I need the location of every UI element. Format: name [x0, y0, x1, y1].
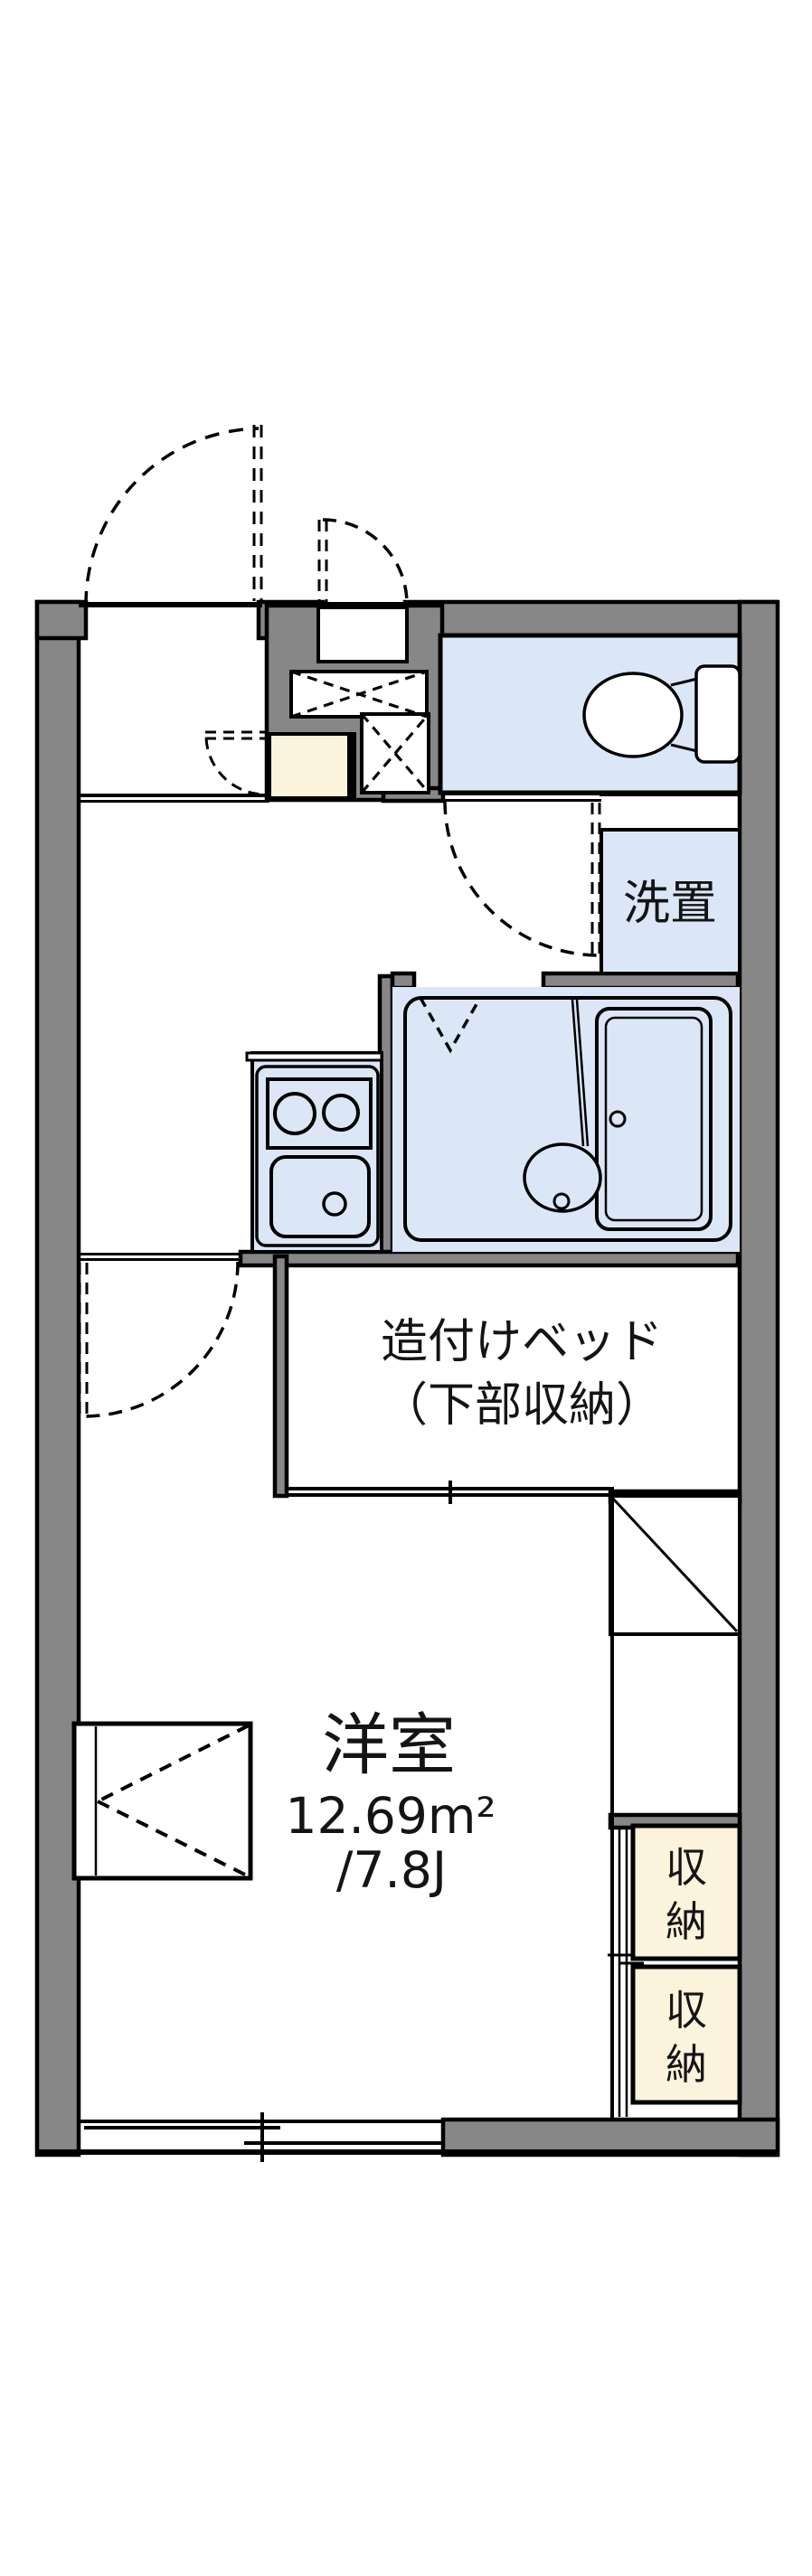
closet-column: 収 納 収 納: [608, 1496, 740, 2120]
vestibule-features: [205, 607, 429, 799]
shoe-cabinet-door: [205, 732, 268, 794]
entry-door-swing-arc: [86, 428, 259, 606]
bed-label-line1: 造付けベッド: [381, 1315, 663, 1369]
washbasin-icon: [524, 1144, 600, 1211]
floorplan-svg: 洗置 造付けベッド （下部収納）: [0, 0, 812, 2576]
floorplan-canvas: 洗置 造付けベッド （下部収納）: [0, 0, 812, 2576]
wall-bath-top-right: [543, 973, 738, 988]
main-room-name: 洋室: [322, 1706, 456, 1784]
toilet-tank-icon: [696, 666, 740, 762]
toilet-door-threshold-2: [443, 799, 601, 802]
bed-label-line2: （下部収納）: [381, 1378, 663, 1433]
wall-top-right-segment: [405, 602, 776, 638]
storage-lower-label-2: 納: [666, 2040, 707, 2089]
wall-left: [37, 602, 79, 2155]
service-door-recess: [318, 607, 407, 662]
wall-bath-top-left: [392, 973, 414, 988]
entry-step-line-1: [77, 794, 269, 797]
storage-lower-label-1: 収: [666, 1986, 707, 2035]
mainroom-door-threshold-2: [77, 1258, 241, 1261]
built-in-bed: 造付けベッド （下部収納）: [287, 1315, 740, 1504]
door-swing-arc: [445, 801, 600, 955]
entry-door-threshold: [79, 602, 262, 607]
kitchen-unit: [247, 1053, 382, 1252]
wall-bedroom-top: [241, 1252, 738, 1265]
laundry-space: 洗置: [601, 830, 740, 973]
mainroom-door-swing-arc: [83, 1262, 238, 1416]
storage-upper-label-1: 収: [666, 1843, 707, 1892]
shoe-cabinet: [269, 734, 349, 798]
wall-top-left-segment: [37, 602, 86, 638]
bed-front-center-tick: [448, 1481, 452, 1504]
kitchen-counter-top-edge: [247, 1053, 382, 1060]
main-room: 洋室 12.69m² /7.8J: [285, 1706, 496, 1899]
toilet-room: [440, 635, 740, 793]
window-center-tick: [260, 2112, 264, 2162]
mainroom-door-threshold-1: [77, 1253, 241, 1255]
door-swing-arc: [206, 738, 263, 794]
wall-counter-unit: [74, 1724, 250, 1878]
wall-bedroom-left: [275, 1256, 287, 1496]
bottom-outer-edge: [37, 2149, 776, 2155]
window-pane-line-left: [84, 2126, 280, 2129]
shoe-cabinet-back-edge: [347, 732, 356, 799]
laundry-label: 洗置: [623, 877, 717, 931]
wall-right: [740, 602, 778, 2155]
entry-step-line-2: [77, 800, 269, 803]
main-room-area-tatami: /7.8J: [336, 1841, 447, 1899]
toilet-bowl-icon: [584, 673, 682, 757]
main-room-area-m2: 12.69m²: [285, 1787, 496, 1845]
bathroom: [392, 987, 740, 1252]
toilet-door: [445, 801, 600, 960]
doors: [80, 425, 407, 1418]
service-door-swing-arc: [323, 520, 407, 604]
storage-upper-label-2: 納: [666, 1897, 707, 1946]
window-pane-line-right: [244, 2141, 443, 2145]
